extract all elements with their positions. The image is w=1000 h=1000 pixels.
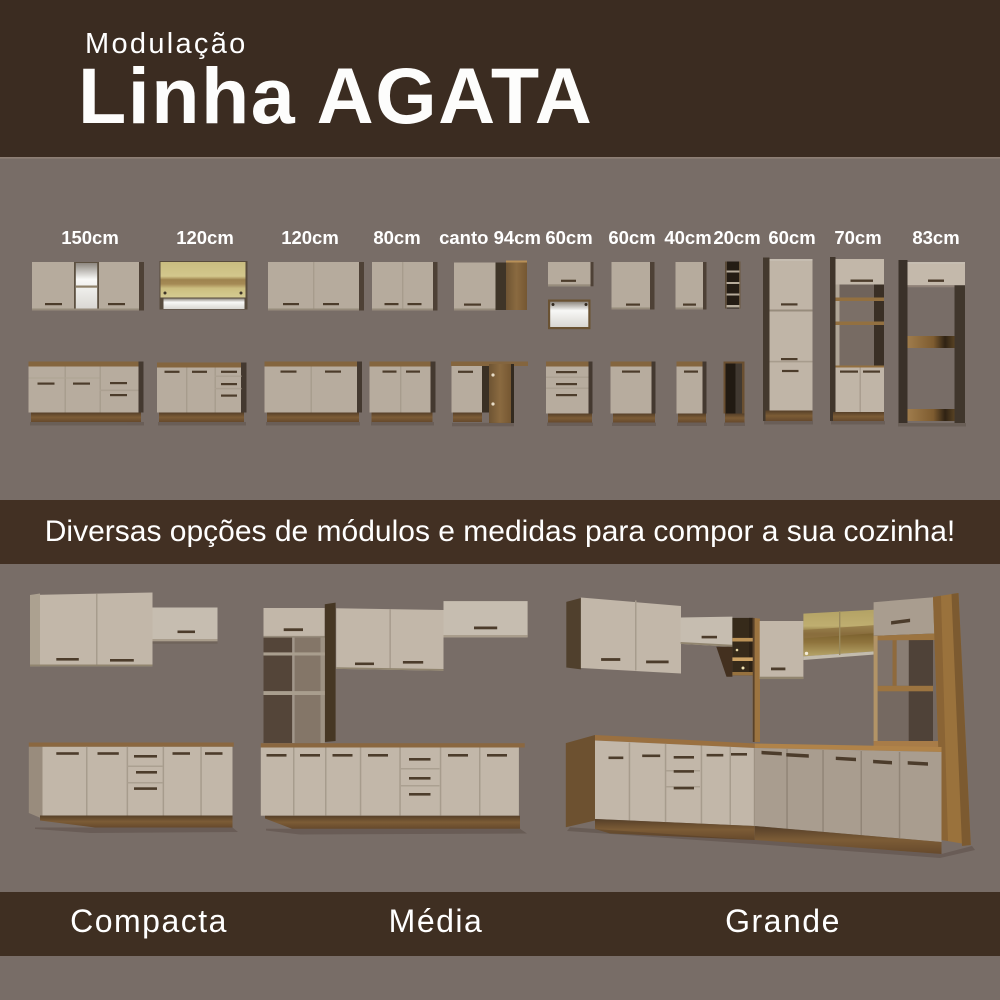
svg-text:canto 94cm: canto 94cm bbox=[439, 227, 541, 248]
svg-text:Linha AGATA: Linha AGATA bbox=[78, 51, 593, 140]
svg-text:40cm: 40cm bbox=[664, 227, 711, 248]
svg-text:120cm: 120cm bbox=[176, 227, 234, 248]
svg-text:70cm: 70cm bbox=[834, 227, 881, 248]
svg-text:83cm: 83cm bbox=[912, 227, 959, 248]
svg-text:20cm: 20cm bbox=[713, 227, 760, 248]
svg-text:Grande: Grande bbox=[725, 903, 841, 939]
svg-text:60cm: 60cm bbox=[768, 227, 815, 248]
svg-text:150cm: 150cm bbox=[61, 227, 119, 248]
svg-text:Média: Média bbox=[389, 903, 484, 939]
svg-text:Diversas opções de módulos e m: Diversas opções de módulos e medidas par… bbox=[45, 515, 956, 548]
svg-text:Compacta: Compacta bbox=[70, 903, 228, 939]
svg-text:60cm: 60cm bbox=[545, 227, 592, 248]
svg-text:120cm: 120cm bbox=[281, 227, 339, 248]
svg-text:60cm: 60cm bbox=[608, 227, 655, 248]
svg-text:80cm: 80cm bbox=[373, 227, 420, 248]
